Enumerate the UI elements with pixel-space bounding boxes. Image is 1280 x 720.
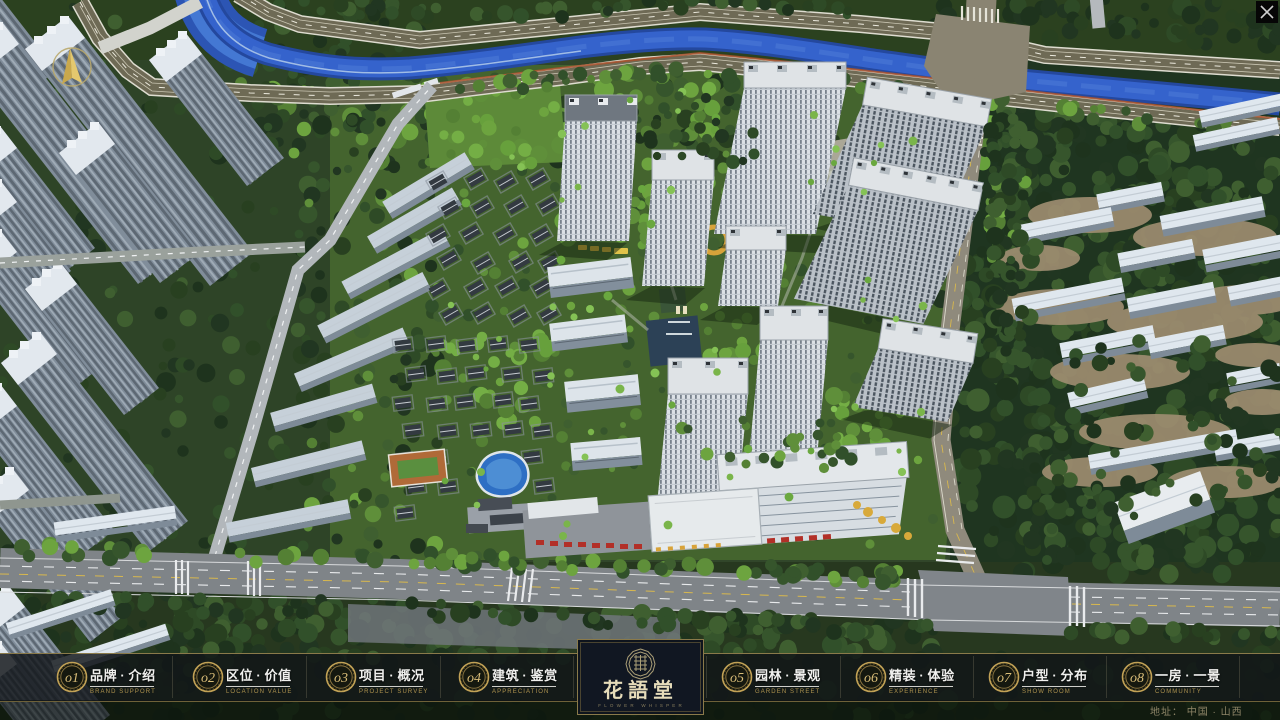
svg-text:花語堂: 花語堂 <box>603 678 678 702</box>
svg-text:o1: o1 <box>65 671 79 686</box>
svg-text:o8: o8 <box>1130 671 1144 686</box>
svg-text:o4: o4 <box>467 671 481 686</box>
svg-text:o6: o6 <box>864 671 878 686</box>
svg-text:o2: o2 <box>201 671 215 686</box>
svg-text:o3: o3 <box>334 671 348 686</box>
svg-text:F L O W E R W H I S P E R: F L O W E R W H I S P E R <box>598 703 683 708</box>
svg-text:o5: o5 <box>730 671 744 686</box>
svg-text:o7: o7 <box>997 671 1012 686</box>
